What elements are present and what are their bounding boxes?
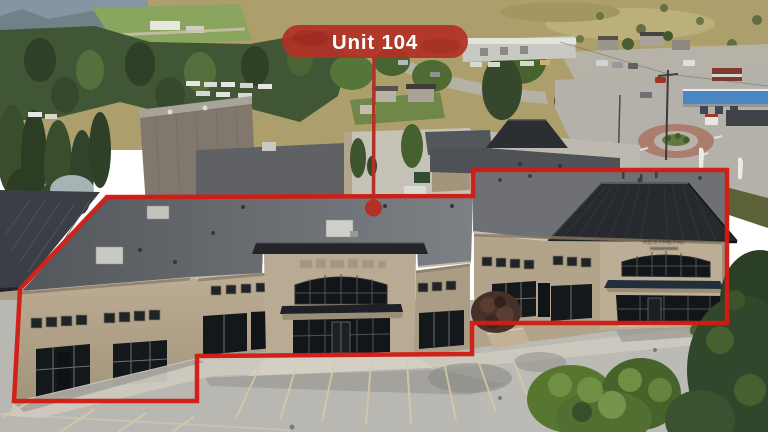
rear-hvac-unit [262,142,276,151]
storefront-door [538,283,550,317]
dumpster [414,172,430,183]
fuel-pump [700,106,708,114]
delivery-truck [404,186,426,194]
farm-building [150,21,180,30]
leader-dot [365,200,382,217]
roof-vent [383,204,387,208]
manhole [498,396,502,400]
hvac-unit [96,247,123,264]
cypress-tree [401,124,423,168]
scene-photo: AESTHETIC [0,0,768,432]
storefront-window [203,313,247,355]
gas-station-canopy [683,91,768,104]
unit-callout-label: Unit 104 [332,31,418,54]
entrance-cornice [252,243,428,254]
roof-vent [211,231,215,235]
unit-callout: Unit 104 [282,25,468,58]
centre-right-wall [414,264,470,356]
aerial-photo: AESTHETIC [0,0,768,432]
rear-roof [196,143,348,200]
roof-vent [450,204,454,208]
storefront-door [57,352,71,394]
ornamental-bush [471,291,521,333]
gas-kiosk [705,117,718,125]
entrance-door [341,322,350,353]
tree-shadow [428,363,512,393]
roof-vent [241,205,245,209]
cypress-tree [350,138,366,178]
entrance-door [332,322,341,353]
manhole [290,425,295,430]
entrance-feature [252,243,428,358]
fuel-pump [715,106,723,114]
right-awning [604,280,724,289]
roof-vent [173,260,177,264]
tenant-sign-text: AESTHETIC [643,239,685,246]
manhole [653,348,657,352]
hvac-unit [147,206,169,219]
right-door [648,298,661,324]
gas-station-store [726,110,768,126]
roof-vent [138,248,142,252]
leader-line [374,57,375,201]
hvac-unit [326,220,353,237]
storefront-window [419,310,464,349]
